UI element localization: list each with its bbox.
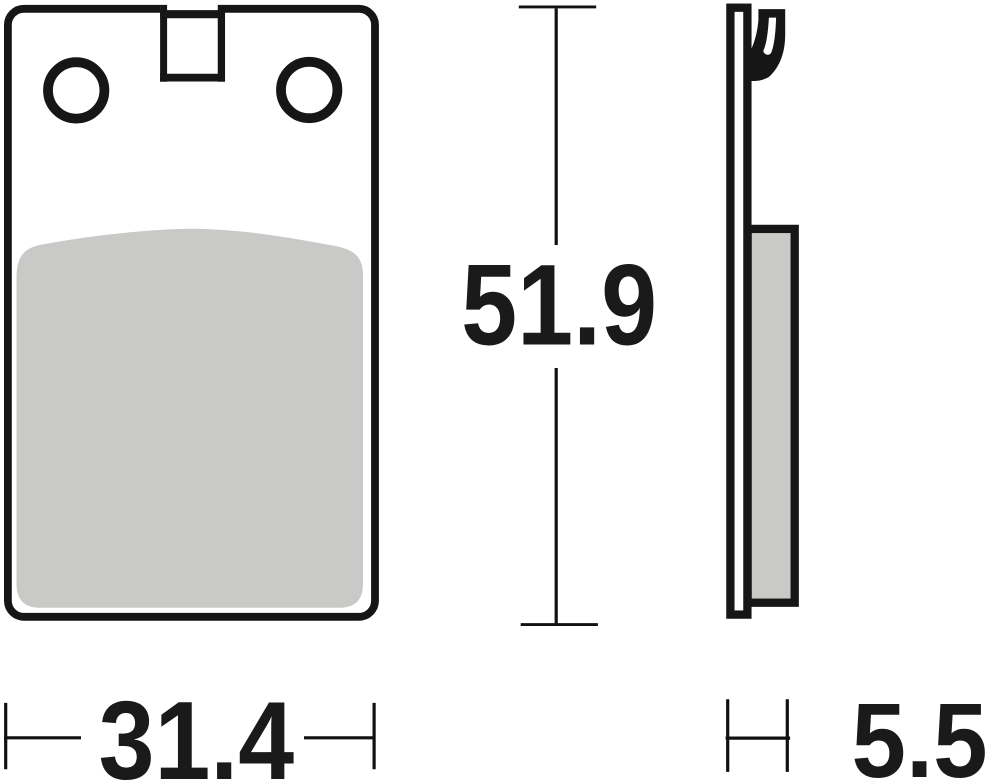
svg-text:51.9: 51.9: [461, 241, 657, 370]
svg-text:5.5: 5.5: [852, 682, 987, 780]
svg-text:31.4: 31.4: [99, 679, 294, 780]
